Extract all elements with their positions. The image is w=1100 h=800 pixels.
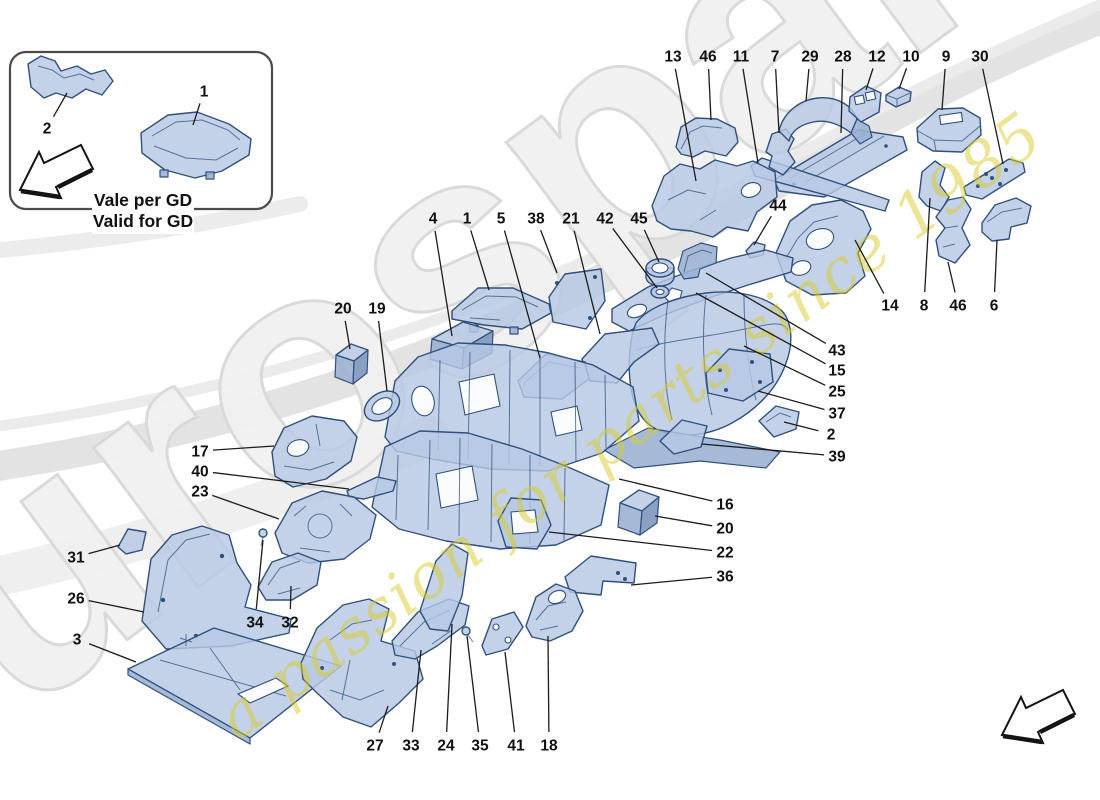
leader-line-c37 (758, 391, 824, 410)
callout-label-m45: 45 (630, 211, 648, 228)
part-41-shape (482, 612, 523, 655)
leader-line-l32 (290, 586, 291, 609)
part-45-shape (646, 259, 674, 286)
callout-label-l40: 40 (191, 464, 208, 481)
callout-label-t30: 30 (971, 49, 988, 66)
callout-label-m38: 38 (527, 211, 545, 228)
callout-label-c15: 15 (828, 363, 846, 380)
callout-label-gd1: 1 (200, 84, 209, 101)
leader-line-d22 (549, 532, 712, 551)
callout-label-b41: 41 (507, 738, 525, 755)
leader-line-b35 (467, 636, 478, 732)
callout-label-d22: 22 (716, 545, 733, 562)
callout-label-m5: 5 (497, 211, 506, 228)
callout-label-d16: 16 (716, 497, 734, 514)
callout-label-l17: 17 (191, 444, 208, 461)
leader-line-b18 (548, 636, 549, 732)
callout-label-r8: 8 (920, 298, 929, 315)
callout-label-b35: 35 (471, 738, 489, 755)
callout-label-l34: 34 (246, 615, 264, 632)
callout-label-r6: 6 (990, 298, 999, 315)
callout-label-l20: 20 (334, 301, 351, 318)
callout-label-m1: 1 (463, 211, 472, 228)
gd-note-line1: Vale per GD (94, 190, 192, 210)
callout-label-m42: 42 (596, 211, 613, 228)
page: { "gd_box": { "line1": "Vale per GD", "l… (0, 0, 1100, 800)
callout-label-l23: 23 (191, 484, 209, 501)
part-42-shape (651, 286, 669, 298)
callout-label-l3: 3 (73, 632, 82, 649)
callout-label-d20: 20 (716, 521, 733, 538)
leader-line-b41 (505, 652, 514, 732)
callout-label-c37: 37 (828, 406, 845, 423)
part-2a-shape (759, 406, 799, 437)
gd-box: Vale per GD Valid for GD (10, 52, 272, 234)
callout-label-t13: 13 (664, 49, 682, 66)
leader-line-b24 (447, 624, 452, 732)
callout-label-t12: 12 (868, 49, 885, 66)
leader-line-d20 (655, 516, 712, 526)
callout-label-t11: 11 (733, 49, 750, 66)
callout-label-l31: 31 (67, 550, 85, 567)
part-18-shape (526, 584, 583, 641)
callout-label-l32: 32 (281, 615, 298, 632)
callout-label-r44: 44 (769, 198, 787, 215)
parts-diagram-page: eurospares (0, 0, 1100, 800)
callout-label-d36: 36 (716, 569, 734, 586)
callout-label-m4: 4 (429, 211, 438, 228)
part-36-shape (565, 556, 636, 595)
callout-label-m21: 21 (562, 211, 580, 228)
callout-label-t29: 29 (801, 49, 819, 66)
callout-label-l26: 26 (67, 591, 85, 608)
exploded-parts-diagram: eurospares (0, 0, 1100, 800)
callout-label-c2: 2 (827, 427, 836, 444)
callout-label-b18: 18 (540, 738, 558, 755)
leader-line-r6 (995, 240, 997, 292)
callout-label-b27: 27 (366, 738, 383, 755)
callout-label-gd2: 2 (43, 121, 52, 138)
callout-label-t9: 9 (942, 49, 951, 66)
callout-label-r14: 14 (881, 298, 899, 315)
callout-label-t10: 10 (902, 49, 919, 66)
callout-label-t7: 7 (771, 49, 780, 66)
callout-label-b24: 24 (437, 738, 455, 755)
part-20a-shape (618, 490, 659, 535)
callout-label-r46b: 46 (949, 298, 967, 315)
direction-arrow-bottom-right (1002, 690, 1075, 743)
callout-label-l19: 19 (368, 301, 386, 318)
callout-label-b33: 33 (402, 738, 420, 755)
leader-line-r46b (948, 262, 955, 292)
callout-label-t28: 28 (834, 49, 852, 66)
callout-label-c25: 25 (828, 384, 846, 401)
callout-label-c43: 43 (828, 343, 846, 360)
callout-label-c39: 39 (828, 449, 846, 466)
leader-line-d36 (631, 577, 712, 585)
callout-label-t46a: 46 (699, 49, 717, 66)
gd-note-line2: Valid for GD (93, 211, 193, 231)
